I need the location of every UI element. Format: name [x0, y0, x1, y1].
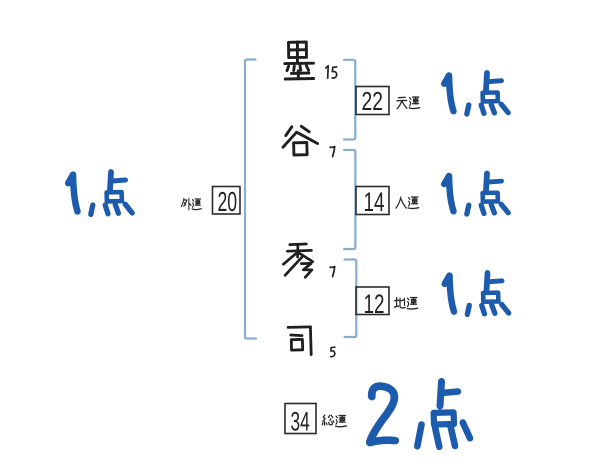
svg-text:20: 20 — [218, 186, 238, 217]
svg-text:34: 34 — [291, 405, 310, 436]
svg-text:12: 12 — [364, 289, 385, 319]
svg-text:14: 14 — [364, 187, 385, 217]
svg-text:22: 22 — [362, 86, 383, 116]
